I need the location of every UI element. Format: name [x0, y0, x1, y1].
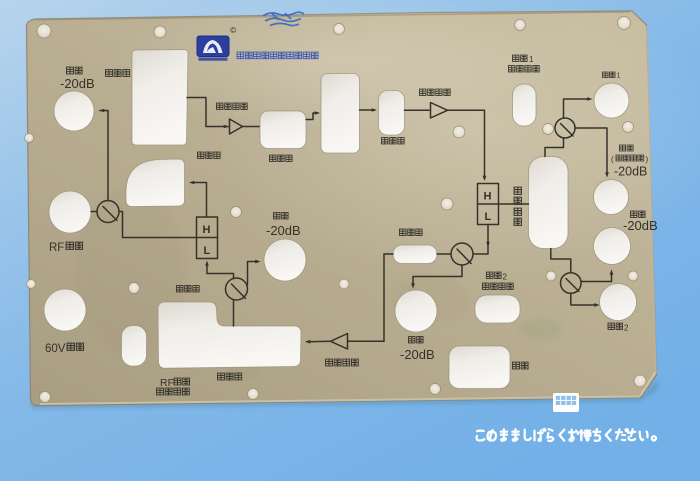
- svg-text:RF: RF: [160, 377, 174, 389]
- svg-text:1: 1: [529, 55, 534, 64]
- svg-text:2: 2: [503, 273, 508, 282]
- svg-text:60V: 60V: [45, 343, 66, 355]
- svg-text:-20dB: -20dB: [623, 218, 658, 233]
- svg-text:1: 1: [617, 73, 621, 80]
- svg-text:-20dB: -20dB: [614, 165, 647, 179]
- svg-text:-20dB: -20dB: [60, 76, 95, 91]
- svg-text:H: H: [484, 191, 492, 203]
- svg-text:-20dB: -20dB: [266, 223, 301, 238]
- svg-text:-20dB: -20dB: [400, 347, 435, 362]
- svg-text:L: L: [485, 211, 492, 223]
- svg-text:RF: RF: [49, 242, 64, 254]
- svg-text:2: 2: [624, 324, 629, 333]
- svg-text:H: H: [203, 224, 211, 236]
- svg-text:©: ©: [230, 25, 237, 35]
- svg-text:L: L: [204, 245, 211, 257]
- svg-text:): ): [646, 155, 649, 164]
- svg-text:(: (: [611, 155, 614, 164]
